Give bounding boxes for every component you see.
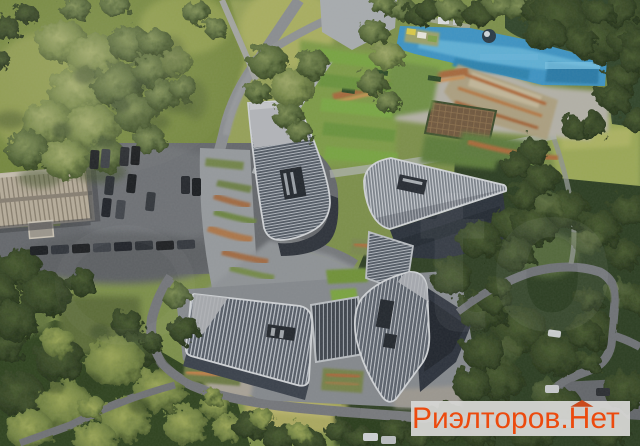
svg-text:to: to xyxy=(418,140,616,375)
svg-text:Риэлторов.Нет: Риэлторов.Нет xyxy=(412,402,620,435)
